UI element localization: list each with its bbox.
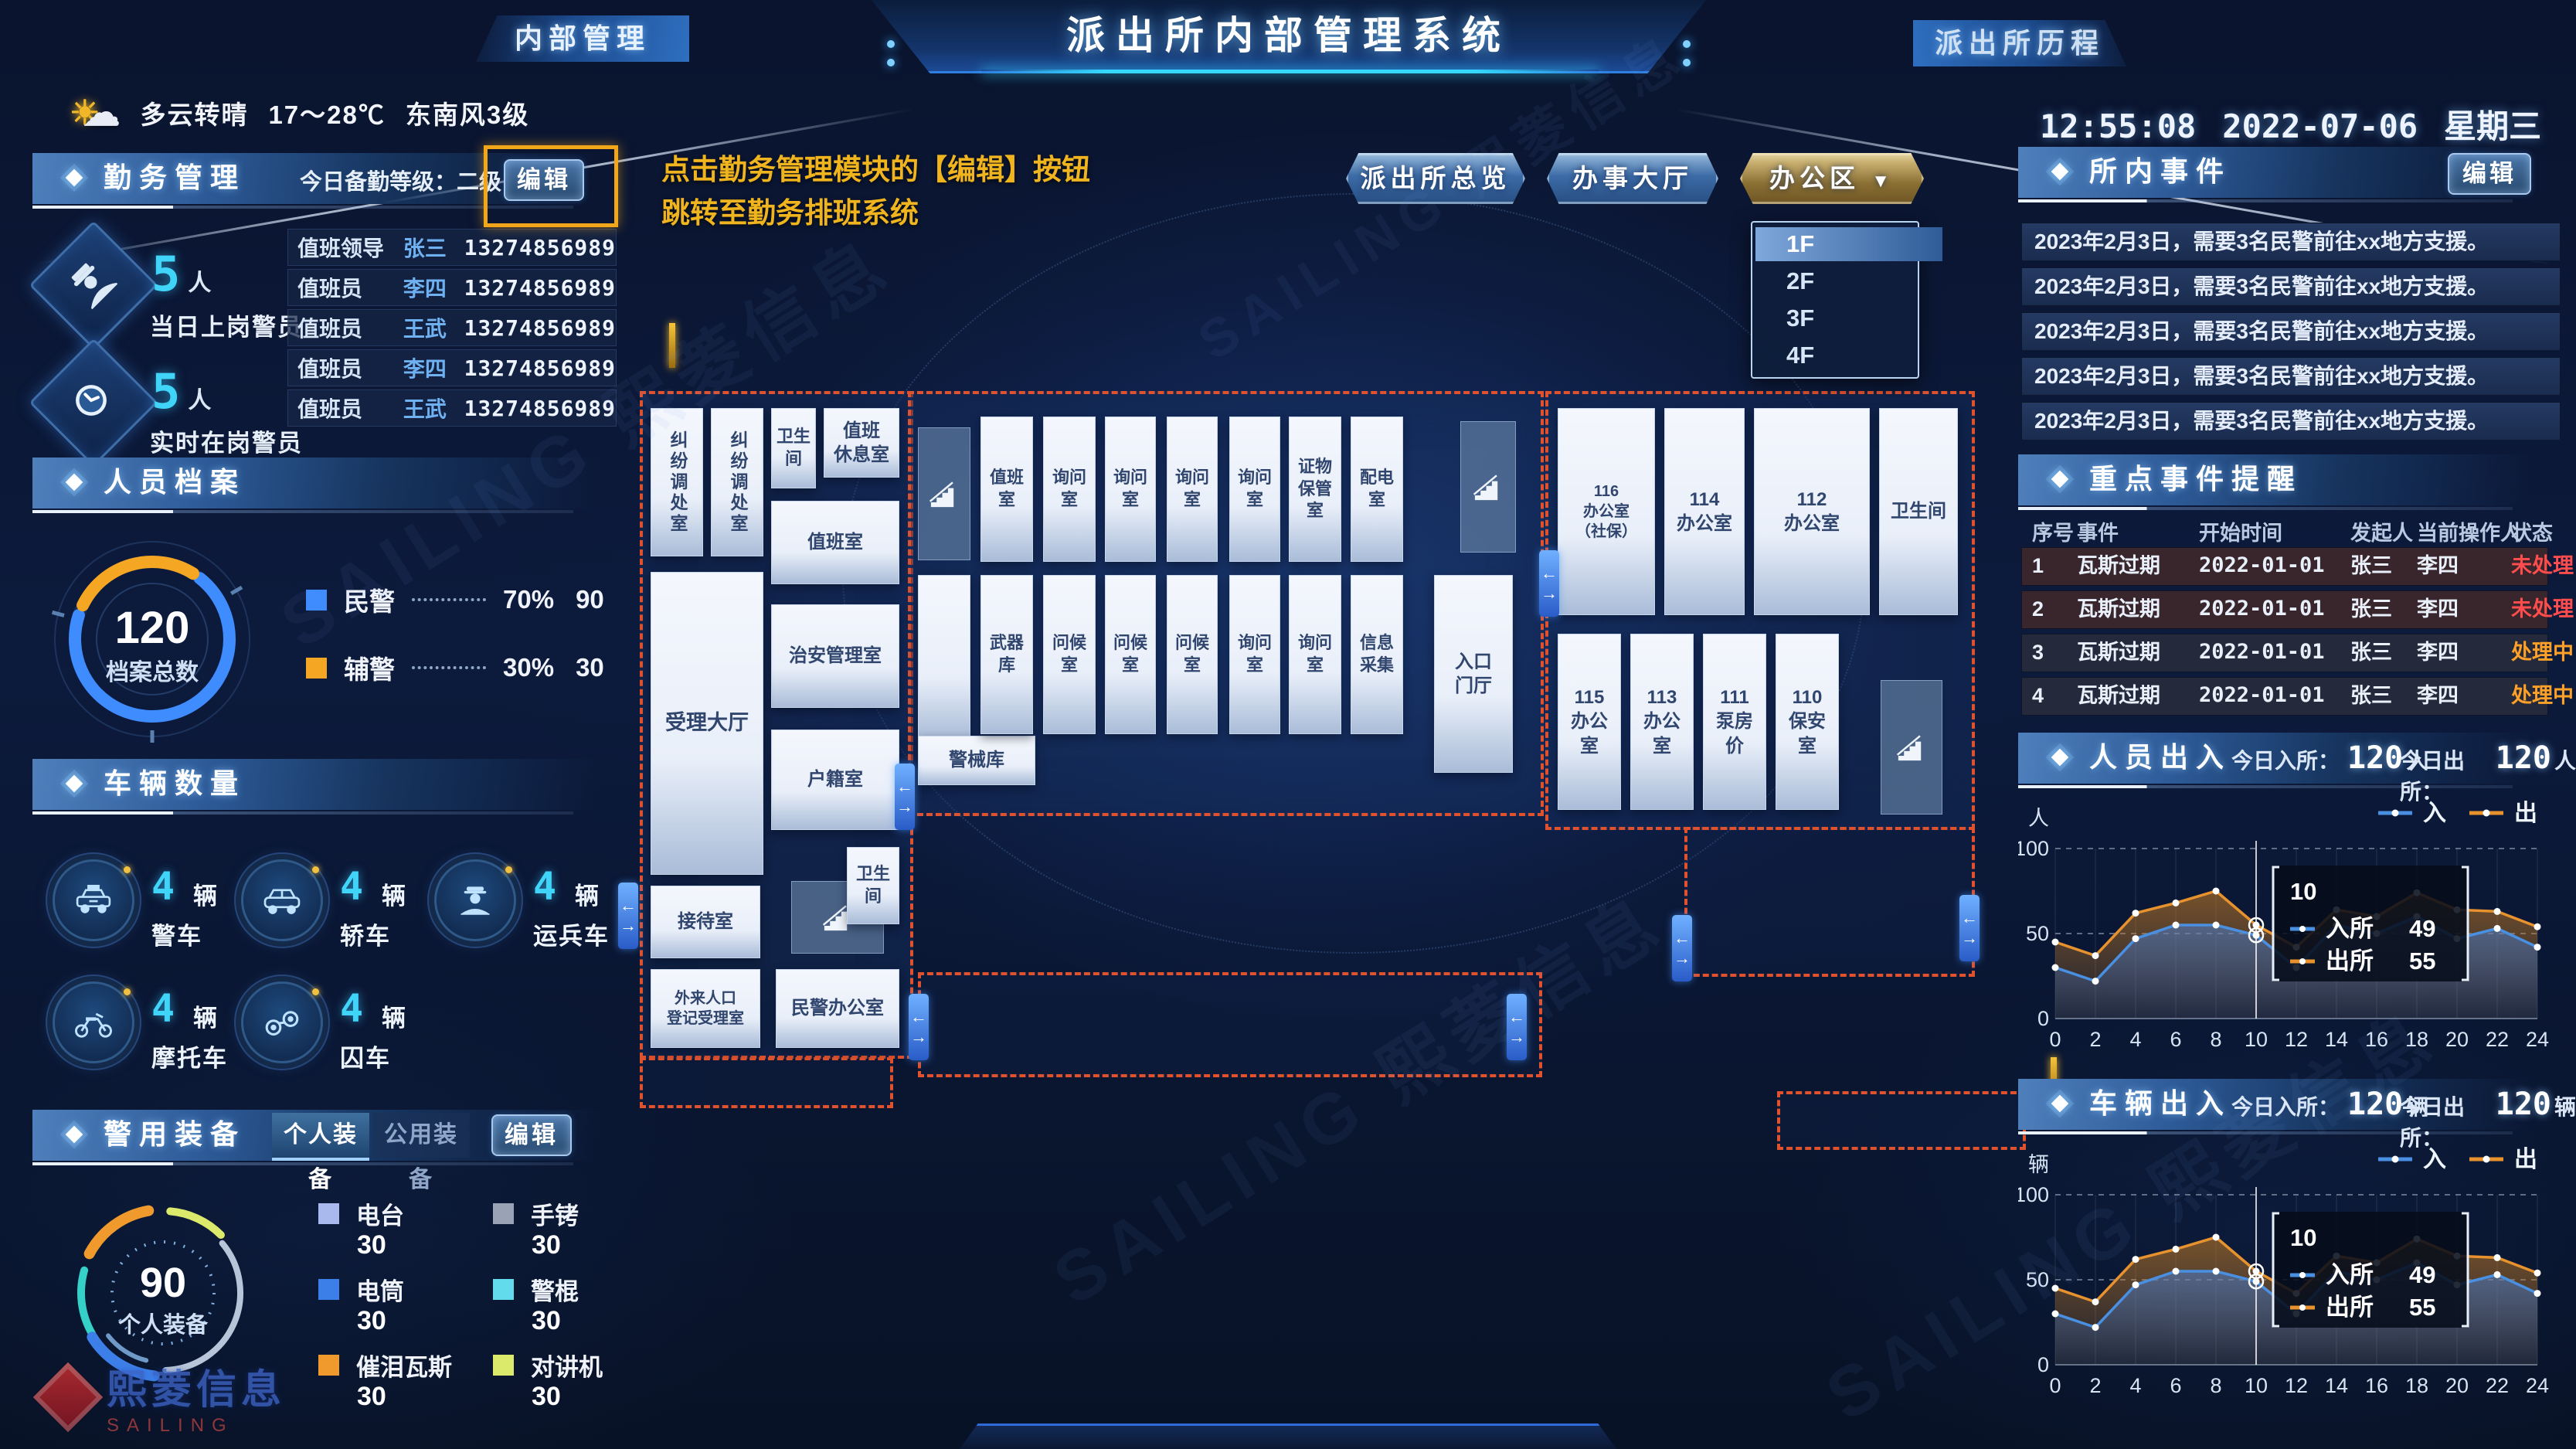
svg-text:出: 出 <box>2514 1147 2537 1172</box>
alert-cell-序号: 3 <box>2032 634 2044 671</box>
stairwell <box>1460 421 1516 553</box>
legend-color-swatch <box>318 1279 339 1300</box>
alert-cell-开始时间: 2022-01-01 <box>2199 677 2325 714</box>
header-underline <box>2018 199 2513 202</box>
legend-percent: 70% <box>503 585 554 614</box>
chevron-down-icon: ▼ <box>1871 171 1895 192</box>
svg-text:0: 0 <box>2037 1353 2049 1376</box>
personnel-donut-chart: 120档案总数 <box>40 527 264 755</box>
roster-phone: 13274856989 <box>464 315 616 341</box>
room-112办公室[interactable]: 112 办公室 <box>1754 408 1870 615</box>
room-111泵房价[interactable]: 111 泵房 价 <box>1703 634 1766 810</box>
vehicle-count: 4 <box>533 864 556 909</box>
legend-color-swatch <box>306 658 327 679</box>
alerts-column-发起人: 发起人 <box>2350 516 2413 546</box>
vehicle-label: 囚车 <box>340 1039 391 1073</box>
room-值班室[interactable]: 值班 室 <box>980 417 1033 562</box>
room-询问室[interactable]: 询问 室 <box>1105 417 1156 562</box>
svg-text:55: 55 <box>2409 947 2435 975</box>
weather-widget: ☀ ☁ 多云转晴 17～28℃ 东南风3级 <box>70 91 529 134</box>
roster-name: 王武 <box>403 393 464 423</box>
floor-option-1F[interactable]: 1F <box>1755 227 1942 261</box>
equipment-legend-item: 电筒 <box>318 1272 404 1307</box>
clock-widget: 12:55:08 2022-07-06 星期三 <box>2040 100 2542 148</box>
room-配电室[interactable]: 配电 室 <box>1351 417 1403 562</box>
alert-cell-状态: 处理中 <box>2511 634 2574 671</box>
door-marker: ←→ <box>909 994 929 1060</box>
svg-text:49: 49 <box>2409 915 2435 942</box>
svg-text:50: 50 <box>2026 1268 2049 1291</box>
vehicle-item-运兵车 <box>434 859 516 941</box>
arrow-left-icon: ← <box>1508 1007 1525 1027</box>
on-duty-count: 5人 <box>151 246 211 302</box>
equipment-count: 30 <box>357 1230 386 1260</box>
header-underline <box>32 811 573 815</box>
room-询问室[interactable]: 询问 室 <box>1167 417 1218 562</box>
diamond-icon <box>66 169 83 187</box>
clock-date: 2022-07-06 <box>2222 107 2418 145</box>
arrow-right-icon: → <box>896 797 913 817</box>
vehicle-item-轿车 <box>241 859 323 941</box>
svg-text:6: 6 <box>2170 1028 2181 1051</box>
room-户籍室[interactable]: 户籍室 <box>771 730 899 830</box>
stairwell <box>1881 680 1942 815</box>
svg-text:10: 10 <box>2245 1028 2268 1051</box>
alert-cell-事件: 瓦斯过期 <box>2077 547 2160 584</box>
legend-label: 民警 <box>344 581 395 618</box>
vehicle-unit: 辆 <box>193 998 219 1033</box>
room-卫生间[interactable]: 卫生间 <box>1879 408 1958 615</box>
vehicle-item-摩托车 <box>53 981 134 1063</box>
floor-option-3F[interactable]: 3F <box>1755 301 1942 335</box>
personnel-legend-item: 辅警30%30 <box>306 649 604 686</box>
alert-cell-开始时间: 2022-01-01 <box>2199 590 2325 628</box>
legend-percent: 30% <box>503 653 554 682</box>
arrow-right-icon: → <box>1961 928 1978 948</box>
roster-row: 值班员李四13274856989 <box>287 269 617 306</box>
room-民警办公室[interactable]: 民警办公室 <box>776 969 899 1048</box>
svg-text:入: 入 <box>2423 801 2446 826</box>
clock-time: 12:55:08 <box>2040 107 2196 145</box>
equipment-label: 催泪瓦斯 <box>356 1348 452 1383</box>
vehicle-label: 警车 <box>151 917 202 951</box>
legend-count: 30 <box>576 653 604 682</box>
room-116办公室（社保）[interactable]: 116 办公室 （社保） <box>1558 408 1655 615</box>
floorplan-strip <box>1777 1091 2026 1150</box>
brand-name-en: SAILING <box>107 1415 286 1437</box>
svg-text:0: 0 <box>2049 1028 2061 1051</box>
alert-cell-发起人: 张三 <box>2350 677 2392 714</box>
handcuffs-icon <box>260 1005 304 1039</box>
equipment-label: 电筒 <box>356 1272 404 1307</box>
roster-role: 值班领导 <box>288 232 403 263</box>
svg-text:10: 10 <box>2245 1374 2268 1397</box>
weather-wind: 东南风3级 <box>406 94 529 131</box>
legend-color-swatch <box>493 1355 514 1376</box>
svg-text:10: 10 <box>2290 878 2316 905</box>
equipment-label: 电台 <box>356 1196 404 1231</box>
svg-text:16: 16 <box>2365 1028 2388 1051</box>
button-service-hall[interactable]: 办事大厅 <box>1547 153 1718 204</box>
svg-text:出所: 出所 <box>2326 947 2374 975</box>
svg-text:14: 14 <box>2325 1028 2348 1051</box>
header-title-band: 派出所内部管理系统 <box>872 0 1706 73</box>
event-list-item: 2023年2月3日，需要3名民警前往xx地方支援。 <box>2021 357 2561 396</box>
personnel-legend-item: 民警70%90 <box>306 581 604 618</box>
svg-text:8: 8 <box>2210 1028 2221 1051</box>
legend-color-swatch <box>493 1279 514 1300</box>
svg-text:入: 入 <box>2423 1147 2446 1172</box>
vehicle-count: 4 <box>151 986 175 1031</box>
room-卫生间[interactable]: 卫生 间 <box>847 847 899 924</box>
door-marker: ←→ <box>618 883 638 949</box>
room-值班室[interactable]: 值班室 <box>771 501 899 584</box>
alert-cell-事件: 瓦斯过期 <box>2077 590 2160 628</box>
room-110保安室[interactable]: 110 保安 室 <box>1776 634 1839 810</box>
vehicle-count: 4 <box>340 986 363 1031</box>
roster-name: 李四 <box>403 352 464 383</box>
alert-cell-开始时间: 2022-01-01 <box>2199 547 2325 584</box>
personnel-donut-svg: 120档案总数 <box>40 527 264 751</box>
svg-text:入所: 入所 <box>2326 915 2374 942</box>
floorplan-strip <box>1684 827 1975 977</box>
svg-text:4: 4 <box>2129 1028 2141 1051</box>
vehicle-unit: 辆 <box>382 876 407 911</box>
footer-decor <box>958 1423 1618 1449</box>
brand-mark-icon <box>33 1362 104 1432</box>
alert-cell-当前操作人: 李四 <box>2417 590 2459 628</box>
weather-temp: 17～28℃ <box>268 94 385 131</box>
room-问候室[interactable]: 问候 室 <box>1167 575 1218 734</box>
antenna-light <box>669 323 675 368</box>
alerts-column-事件: 事件 <box>2077 516 2119 546</box>
room-问候室[interactable]: 问候 室 <box>1043 575 1096 734</box>
roster-row: 值班领导张三13274856989 <box>287 229 617 266</box>
equipment-legend-item: 对讲机 <box>493 1348 603 1383</box>
arrow-left-icon: ← <box>1961 908 1978 928</box>
svg-text:20: 20 <box>2445 1374 2469 1397</box>
people-chart-title: 人员出入 <box>2089 733 2231 782</box>
alert-cell-状态: 未处理 <box>2511 590 2574 628</box>
equipment-count: 30 <box>532 1382 561 1412</box>
alert-cell-序号: 2 <box>2032 590 2044 628</box>
svg-text:16: 16 <box>2365 1374 2388 1397</box>
roster-row: 值班员李四13274856989 <box>287 349 617 386</box>
vehicle-unit: 辆 <box>193 876 219 911</box>
line-area-chart: 人100500024681012141618202224入出10入所49出所55 <box>2018 794 2551 1065</box>
on-duty-label: 当日上岗警员 <box>150 308 303 342</box>
events-panel-title: 所内事件 <box>2089 147 2231 196</box>
diamond-icon <box>66 1126 83 1144</box>
brand-name-cn: 熙菱信息 <box>107 1357 286 1415</box>
alert-cell-事件: 瓦斯过期 <box>2077 634 2160 671</box>
floor-option-2F[interactable]: 2F <box>1755 264 1942 298</box>
police-car-icon <box>72 883 115 917</box>
roster-role: 值班员 <box>288 272 403 303</box>
alerts-panel-header: 重点事件提醒 <box>2018 454 2548 505</box>
duty-edit-button[interactable]: 编辑 <box>504 159 584 201</box>
decor-dot <box>1683 40 1691 48</box>
button-station-overview[interactable]: 派出所总览 <box>1346 153 1525 204</box>
roster-name: 张三 <box>403 232 464 263</box>
svg-text:20: 20 <box>2445 1028 2469 1051</box>
alert-cell-状态: 未处理 <box>2511 547 2574 584</box>
vehicle-unit: 辆 <box>382 998 407 1033</box>
tab-public-equipment[interactable]: 公用装备 <box>372 1113 470 1158</box>
door-marker: ←→ <box>1672 915 1692 981</box>
arrow-left-icon: ← <box>620 896 637 916</box>
equipment-label: 警棍 <box>531 1272 579 1307</box>
equipment-panel-title: 警用装备 <box>104 1110 246 1159</box>
alert-cell-状态: 处理中 <box>2511 677 2574 714</box>
room-unlabeled[interactable] <box>918 575 970 740</box>
svg-text:50: 50 <box>2026 922 2049 945</box>
equipment-count: 30 <box>357 1306 386 1336</box>
alerts-column-状态: 状态 <box>2511 516 2553 546</box>
stairs-icon <box>1471 471 1505 502</box>
vehicles-panel-header: 车辆数量 <box>32 759 618 810</box>
diamond-icon <box>2051 163 2069 181</box>
car-icon <box>260 883 304 917</box>
equipment-count: 30 <box>357 1382 386 1412</box>
room-询问室[interactable]: 询问 室 <box>1043 417 1096 562</box>
room-信息采集[interactable]: 信息 采集 <box>1351 575 1403 734</box>
legend-count: 90 <box>576 585 604 614</box>
header-underline <box>32 1162 573 1165</box>
event-list-item: 2023年2月3日，需要3名民警前往xx地方支援。 <box>2021 223 2561 261</box>
room-接待室[interactable]: 接待室 <box>651 886 760 958</box>
weather-condition: 多云转晴 <box>140 94 248 131</box>
personnel-panel-title: 人员档案 <box>104 457 246 507</box>
alert-cell-发起人: 张三 <box>2350 634 2392 671</box>
alert-cell-发起人: 张三 <box>2350 590 2392 628</box>
room-114办公室[interactable]: 114 办公室 <box>1664 408 1745 615</box>
svg-text:14: 14 <box>2325 1374 2348 1397</box>
floor-dropdown: 1F2F3F4F <box>1751 221 1919 379</box>
roster-role: 值班员 <box>288 393 403 423</box>
brand-logo: 熙菱信息 SAILING <box>43 1357 286 1437</box>
svg-text:2: 2 <box>2089 1028 2101 1051</box>
svg-text:12: 12 <box>2285 1374 2308 1397</box>
duty-panel-title: 勤务管理 <box>104 153 246 202</box>
vehicle-label: 摩托车 <box>151 1039 228 1073</box>
line-area-chart: 辆100500024681012141618202224入出10入所49出所55 <box>2018 1141 2551 1411</box>
svg-text:22: 22 <box>2486 1374 2509 1397</box>
arrow-left-icon: ← <box>1674 928 1691 948</box>
decor-dot <box>887 59 895 66</box>
svg-text:18: 18 <box>2405 1374 2428 1397</box>
svg-text:24: 24 <box>2526 1028 2549 1051</box>
arrow-left-icon: ← <box>910 1007 927 1027</box>
floorplan-strip <box>640 1057 893 1108</box>
legend-dash <box>412 666 486 669</box>
vehicle-label: 运兵车 <box>533 917 610 951</box>
floorplan-strip <box>918 972 1542 1077</box>
room-治安管理室[interactable]: 治安管理室 <box>771 604 899 708</box>
roster-row: 值班员王武13274856989 <box>287 389 617 427</box>
roster-phone: 13274856989 <box>464 355 616 381</box>
cloud-icon: ☁ <box>83 91 120 134</box>
svg-text:10: 10 <box>2290 1224 2316 1251</box>
svg-text:个人装备: 个人装备 <box>118 1312 209 1338</box>
vehicle-in-stat: 今日入所：120辆 <box>2231 1087 2428 1122</box>
svg-text:人: 人 <box>2028 807 2049 830</box>
room-115办公室[interactable]: 115 办公 室 <box>1558 634 1621 810</box>
svg-text:24: 24 <box>2526 1374 2549 1397</box>
equipment-legend-item: 警棍 <box>493 1272 579 1307</box>
diamond-icon <box>2051 1095 2069 1113</box>
door-marker: ←→ <box>1959 895 1980 961</box>
personnel-panel-header: 人员档案 <box>32 457 618 509</box>
room-纠纷调处室[interactable]: 纠纷调处室 <box>651 408 703 556</box>
clock-icon <box>59 369 123 432</box>
diamond-icon <box>2051 471 2069 488</box>
roster-name: 王武 <box>403 312 464 343</box>
svg-text:档案总数: 档案总数 <box>106 659 199 685</box>
legend-color-swatch <box>318 1355 339 1376</box>
door-marker: ←→ <box>1507 994 1527 1060</box>
vehicle-count: 4 <box>340 864 363 909</box>
decor-dot <box>887 40 895 48</box>
alert-cell-序号: 1 <box>2032 547 2044 584</box>
room-询问室[interactable]: 询问 室 <box>1229 417 1280 562</box>
svg-text:出所: 出所 <box>2326 1294 2374 1321</box>
diamond-icon <box>66 775 83 793</box>
room-卫生间[interactable]: 卫生 间 <box>771 408 816 488</box>
svg-text:出: 出 <box>2514 801 2537 826</box>
equipment-count: 30 <box>532 1306 561 1336</box>
svg-text:49: 49 <box>2409 1261 2435 1288</box>
motorcycle-icon <box>72 1005 115 1039</box>
officer-icon <box>57 249 125 317</box>
svg-text:22: 22 <box>2486 1028 2509 1051</box>
people-in-out-chart: 人100500024681012141618202224入出10入所49出所55 <box>2018 794 2551 1069</box>
vehicle-unit: 辆 <box>575 876 600 911</box>
svg-text:入所: 入所 <box>2326 1261 2374 1288</box>
room-警械库[interactable]: 警械库 <box>918 736 1035 785</box>
equipment-legend-item: 电台 <box>318 1196 404 1231</box>
door-marker: ←→ <box>895 764 915 830</box>
room-入口门厅[interactable]: 入口 门厅 <box>1434 575 1513 773</box>
equipment-label: 手铐 <box>531 1196 579 1231</box>
vehicle-in-out-chart: 辆100500024681012141618202224入出10入所49出所55 <box>2018 1141 2551 1415</box>
legend-color-swatch <box>306 590 327 611</box>
room-值班休息室[interactable]: 值班 休息室 <box>824 408 899 478</box>
annotation-line2: 跳转至勤务排班系统 <box>661 192 1090 235</box>
roster-role: 值班员 <box>288 352 403 383</box>
svg-text:辆: 辆 <box>2028 1153 2049 1176</box>
realtime-stat <box>48 357 139 448</box>
on-duty-stat <box>48 240 139 331</box>
duty-level-label: 今日备勤等级：二级 <box>300 164 501 196</box>
stairwell <box>918 427 970 560</box>
door-marker: ←→ <box>1539 550 1559 617</box>
roster-phone: 13274856989 <box>464 235 616 260</box>
header-underline <box>2018 507 2513 510</box>
room-受理大厅[interactable]: 受理大厅 <box>651 572 763 875</box>
arrow-right-icon: → <box>910 1027 927 1047</box>
button-office-area[interactable]: 办公区 ▼ <box>1740 153 1924 204</box>
floor-option-4F[interactable]: 4F <box>1755 338 1942 372</box>
room-纠纷调处室[interactable]: 纠纷调处室 <box>711 408 763 556</box>
room-113办公室[interactable]: 113 办公 室 <box>1630 634 1694 810</box>
svg-text:2: 2 <box>2089 1374 2101 1397</box>
svg-text:100: 100 <box>2018 837 2049 860</box>
realtime-label: 实时在岗警员 <box>150 423 303 458</box>
arrow-right-icon: → <box>1508 1027 1525 1047</box>
tab-internal-management[interactable]: 内部管理 <box>476 15 689 62</box>
alerts-column-序号: 序号 <box>2032 516 2074 546</box>
annotation-line1: 点击勤务管理模块的【编辑】按钮 <box>661 148 1090 192</box>
legend-label: 辅警 <box>344 649 395 686</box>
arrow-left-icon: ← <box>896 777 913 797</box>
vehicle-item-囚车 <box>241 981 323 1063</box>
header-underline <box>32 510 573 513</box>
diamond-icon <box>2051 749 2069 767</box>
alerts-column-开始时间: 开始时间 <box>2199 516 2282 546</box>
event-list-item: 2023年2月3日，需要3名民警前往xx地方支援。 <box>2021 312 2561 351</box>
stairs-icon <box>927 478 961 509</box>
equipment-count: 30 <box>532 1230 561 1260</box>
arrow-right-icon: → <box>620 916 637 936</box>
alert-cell-当前操作人: 李四 <box>2417 547 2459 584</box>
vehicles-panel-title: 车辆数量 <box>104 759 246 808</box>
svg-text:0: 0 <box>2049 1374 2061 1397</box>
vehicle-item-警车 <box>53 859 134 941</box>
room-证物保管室[interactable]: 证物 保管 室 <box>1289 417 1341 562</box>
tab-station-history[interactable]: 派出所历程 <box>1913 20 2126 66</box>
stairs-icon <box>1895 732 1929 763</box>
alert-cell-序号: 4 <box>2032 677 2044 714</box>
realtime-count: 5人 <box>151 363 211 420</box>
arrow-left-icon: ← <box>1541 563 1558 583</box>
roster-phone: 13274856989 <box>464 396 616 421</box>
room-问候室[interactable]: 问候 室 <box>1105 575 1156 734</box>
clock-weekday: 星期三 <box>2444 100 2541 148</box>
vehicle-label: 轿车 <box>340 917 391 951</box>
room-外来人口登记受理室[interactable]: 外来人口 登记受理室 <box>651 969 760 1048</box>
room-询问室[interactable]: 询问 室 <box>1289 575 1341 734</box>
svg-text:55: 55 <box>2409 1294 2435 1321</box>
events-edit-button[interactable]: 编辑 <box>2448 153 2531 195</box>
svg-text:100: 100 <box>2018 1183 2049 1206</box>
room-询问室[interactable]: 询问 室 <box>1229 575 1280 734</box>
vehicle-chart-title: 车辆出入 <box>2089 1079 2231 1128</box>
svg-text:8: 8 <box>2210 1374 2221 1397</box>
room-武器库[interactable]: 武器 库 <box>980 575 1033 734</box>
alert-cell-开始时间: 2022-01-01 <box>2199 634 2325 671</box>
legend-color-swatch <box>493 1203 514 1224</box>
vehicle-count: 4 <box>151 864 175 909</box>
troop-carrier-icon <box>454 883 497 917</box>
svg-text:4: 4 <box>2129 1374 2141 1397</box>
equipment-edit-button[interactable]: 编辑 <box>491 1114 572 1156</box>
legend-dash <box>412 598 486 601</box>
tab-personal-equipment[interactable]: 个人装备 <box>272 1113 369 1161</box>
roster-name: 李四 <box>403 272 464 303</box>
roster-role: 值班员 <box>288 312 403 343</box>
page-title: 派出所内部管理系统 <box>872 0 1706 71</box>
title-glow-line <box>981 70 1599 73</box>
roster-row: 值班员王武13274856989 <box>287 309 617 346</box>
legend-color-swatch <box>318 1203 339 1224</box>
event-list-item: 2023年2月3日，需要3名民警前往xx地方支援。 <box>2021 267 2561 306</box>
alert-cell-当前操作人: 李四 <box>2417 634 2459 671</box>
equipment-legend-item: 催泪瓦斯 <box>318 1348 452 1383</box>
svg-text:18: 18 <box>2405 1028 2428 1051</box>
annotation-callout: 点击勤务管理模块的【编辑】按钮 跳转至勤务排班系统 <box>661 148 1090 235</box>
event-list-item: 2023年2月3日，需要3名民警前往xx地方支援。 <box>2021 402 2561 440</box>
